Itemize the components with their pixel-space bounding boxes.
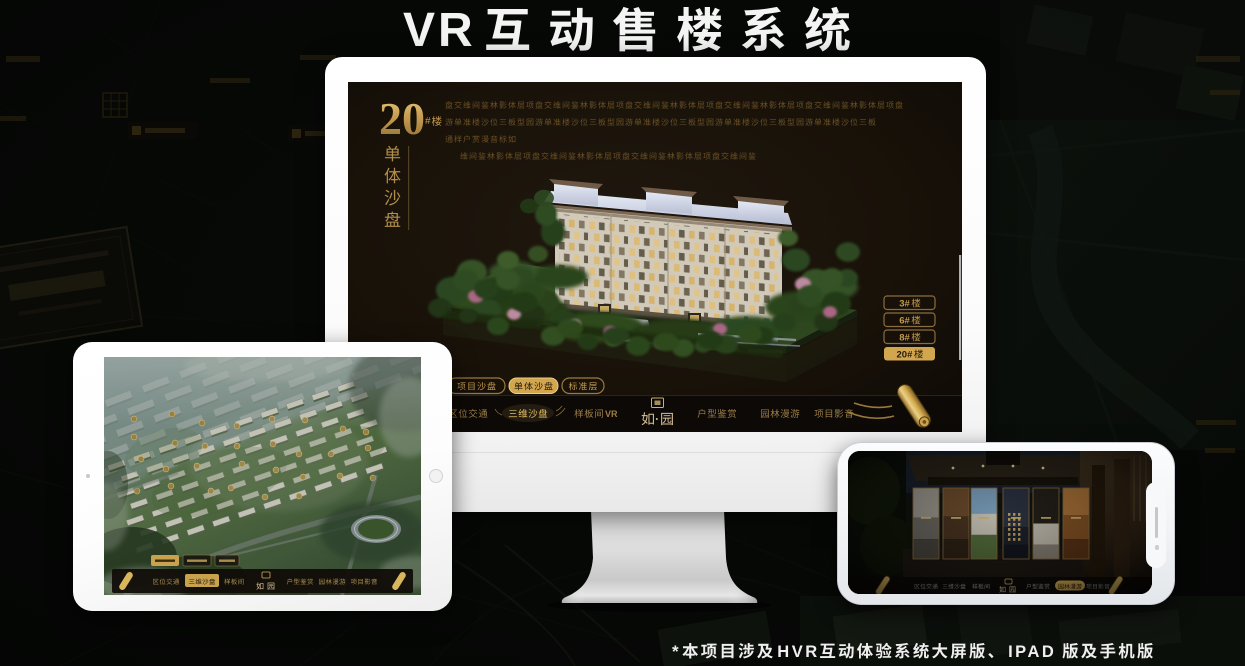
svg-text:VR: VR (403, 4, 476, 57)
svg-text:20: 20 (379, 93, 425, 144)
svg-text:IPAD: IPAD (1008, 643, 1056, 661)
svg-text:8#: 8# (899, 333, 910, 344)
svg-text:HVR: HVR (777, 643, 819, 661)
svg-text:6#: 6# (899, 316, 910, 327)
svg-text:*: * (672, 642, 679, 661)
svg-text:#: # (425, 116, 431, 127)
svg-text:3#: 3# (899, 299, 910, 310)
svg-text:VR: VR (605, 409, 618, 419)
svg-text:20#: 20# (897, 350, 914, 361)
